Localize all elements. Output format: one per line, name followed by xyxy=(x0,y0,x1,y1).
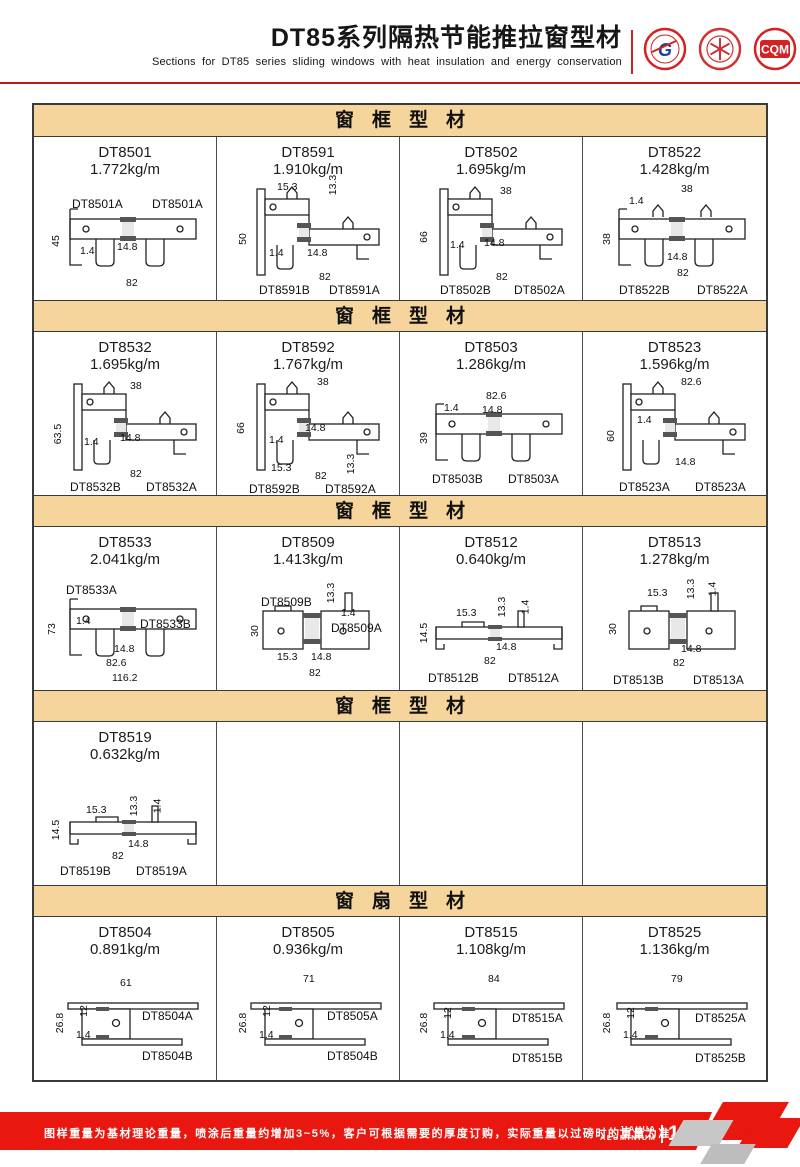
dimension-label: 116.2 xyxy=(112,672,138,684)
dimension-label: 13.3 xyxy=(496,597,508,617)
dimension-label: 61 xyxy=(120,977,132,989)
dimension-label: 82 xyxy=(315,470,327,482)
dimension-label: 15.3 xyxy=(456,607,476,619)
section-header: 窗扇型材 xyxy=(34,885,766,917)
dimension-label: 73 xyxy=(46,623,58,635)
dimension-label: 12 xyxy=(261,1005,273,1017)
part-label: DT8525A xyxy=(695,1011,746,1025)
profile-cell: DT85040.891kg/m611226.81.4DT8504ADT8504B xyxy=(34,917,217,1080)
decor-parallelogram-gray xyxy=(700,1144,756,1164)
part-label: DT8591A xyxy=(329,283,380,297)
dimension-label: 14.8 xyxy=(128,838,148,850)
dimension-label: 1.4 xyxy=(76,615,91,627)
part-label: DT8532A xyxy=(146,480,197,494)
dimension-label: 82 xyxy=(126,277,138,289)
dimension-label: 82.6 xyxy=(106,657,126,669)
gb-certification-icon: G xyxy=(642,26,688,72)
profile-drawing xyxy=(583,332,766,495)
dimension-label: 1.4 xyxy=(519,600,531,615)
part-label: DT8525B xyxy=(695,1051,746,1065)
profile-row: DT85190.632kg/m15.313.31.414.514.882DT85… xyxy=(34,722,766,885)
dimension-label: 15.3 xyxy=(277,181,297,193)
dimension-label: 1.4 xyxy=(629,195,644,207)
profile-drawing xyxy=(217,137,400,300)
dimension-label: 38 xyxy=(317,376,329,388)
dimension-label: 38 xyxy=(601,233,613,245)
part-label: DT8592A xyxy=(325,482,376,495)
profile-drawing xyxy=(217,332,400,495)
dimension-label: 13.3 xyxy=(345,454,357,474)
dimension-label: 1.4 xyxy=(450,239,465,251)
page-footer: 图样重量为基材理论重量，喷涂后重量约增加3~5%，客户可根据需要的厚度订购，实际… xyxy=(0,1104,800,1167)
profile-cell: DT85021.695kg/m38661.414.882DT8502BDT850… xyxy=(400,137,583,300)
part-label: DT8523A xyxy=(695,480,746,494)
dimension-label: 13.3 xyxy=(327,175,339,195)
dimension-label: 15.3 xyxy=(277,651,297,663)
brand-divider xyxy=(661,1125,663,1143)
dimension-label: 1.4 xyxy=(76,1029,91,1041)
dimension-label: 38 xyxy=(681,183,693,195)
profile-cell: DT85151.108kg/m841226.81.4DT8515ADT8515B xyxy=(400,917,583,1080)
dimension-label: 79 xyxy=(671,973,683,985)
certification-logos: G CQM xyxy=(642,26,798,72)
dimension-label: 82.6 xyxy=(486,390,506,402)
dimension-label: 1.4 xyxy=(706,582,718,597)
part-label: DT8501A xyxy=(72,197,123,211)
dimension-label: 38 xyxy=(500,185,512,197)
part-label: DT8504B xyxy=(142,1049,193,1063)
dimension-label: 12 xyxy=(78,1005,90,1017)
dimension-label: 13.3 xyxy=(325,583,337,603)
part-label: DT8519A xyxy=(136,864,187,878)
dimension-label: 14.8 xyxy=(675,456,695,468)
dimension-label: 82 xyxy=(319,271,331,283)
part-label: DT8513B xyxy=(613,673,664,687)
profile-drawing xyxy=(34,137,217,300)
dimension-label: 14.8 xyxy=(667,251,687,263)
profile-drawing xyxy=(400,137,583,300)
profile-cell: DT85120.640kg/m15.313.31.414.514.882DT85… xyxy=(400,527,583,690)
dimension-label: 15.3 xyxy=(647,587,667,599)
dimension-label: 82 xyxy=(309,667,321,679)
dimension-label: 66 xyxy=(235,422,247,434)
part-label: DT8509A xyxy=(331,621,382,635)
part-label: DT8504A xyxy=(142,1009,193,1023)
profile-drawing xyxy=(583,137,766,300)
dimension-label: 14.8 xyxy=(681,643,701,655)
dimension-label: 50 xyxy=(237,233,249,245)
profile-row: DT85040.891kg/m611226.81.4DT8504ADT8504B… xyxy=(34,917,766,1080)
part-label: DT8515B xyxy=(512,1051,563,1065)
empty-cell xyxy=(583,722,766,885)
dimension-label: 82 xyxy=(677,267,689,279)
dimension-label: 71 xyxy=(303,973,315,985)
dimension-label: 14.8 xyxy=(305,422,325,434)
profile-cell: DT85332.041kg/m731.414.882.6116.2DT8533A… xyxy=(34,527,217,690)
cqm-text: CQM xyxy=(761,43,789,57)
dimension-label: 1.4 xyxy=(84,436,99,448)
dimension-label: 14.8 xyxy=(482,404,502,416)
dimension-label: 14.5 xyxy=(418,623,430,643)
dimension-label: 14.8 xyxy=(307,247,327,259)
part-label: DT8513A xyxy=(693,673,744,687)
part-label: DT8504B xyxy=(327,1049,378,1063)
footer-note-band: 图样重量为基材理论重量，喷涂后重量约增加3~5%，客户可根据需要的厚度订购，实际… xyxy=(0,1112,712,1150)
part-label: DT8505A xyxy=(327,1009,378,1023)
dimension-label: 12 xyxy=(442,1007,454,1019)
header-rule xyxy=(0,82,800,84)
profile-cell: DT85050.936kg/m711226.81.4DT8505ADT8504B xyxy=(217,917,400,1080)
dimension-label: 14.5 xyxy=(50,820,62,840)
dimension-label: 1.4 xyxy=(269,434,284,446)
dimension-label: 1.4 xyxy=(259,1029,274,1041)
dimension-label: 26.8 xyxy=(54,1013,66,1033)
profile-cell: DT85131.278kg/m15.313.31.43014.882DT8513… xyxy=(583,527,766,690)
dimension-label: 45 xyxy=(50,235,62,247)
page-subtitle: Sections for DT85 series sliding windows… xyxy=(0,56,622,68)
header-divider xyxy=(631,30,633,74)
profile-cell: DT85091.413kg/m13.3301.415.314.882DT8509… xyxy=(217,527,400,690)
part-label: DT8503B xyxy=(432,472,483,486)
dimension-label: 14.8 xyxy=(117,241,137,253)
empty-cell xyxy=(217,722,400,885)
part-label: DT8519B xyxy=(60,864,111,878)
dimension-label: 15.3 xyxy=(271,462,291,474)
profile-cell: DT85251.136kg/m791226.81.4DT8525ADT8525B xyxy=(583,917,766,1080)
section-header: 窗框型材 xyxy=(34,495,766,527)
part-label: DT8591B xyxy=(259,283,310,297)
quality-seal-icon xyxy=(697,26,743,72)
dimension-label: 30 xyxy=(249,625,261,637)
dimension-label: 84 xyxy=(488,973,500,985)
part-label: DT8592B xyxy=(249,482,300,495)
dimension-label: 14.8 xyxy=(311,651,331,663)
brand-name-2: ALUMINIUM xyxy=(600,1134,656,1143)
part-label: DT8503A xyxy=(508,472,559,486)
part-label: DT8512A xyxy=(508,671,559,685)
profile-cell: DT85911.910kg/m15.313.3501.414.882DT8591… xyxy=(217,137,400,300)
profile-drawing xyxy=(34,332,217,495)
part-label: DT8509B xyxy=(261,595,312,609)
profile-row: DT85011.772kg/m451.414.882DT8501ADT8501A… xyxy=(34,137,766,300)
dimension-label: 14.8 xyxy=(496,641,516,653)
part-label: DT8523A xyxy=(619,480,670,494)
dimension-label: 38 xyxy=(130,380,142,392)
profile-cell: DT85190.632kg/m15.313.31.414.514.882DT85… xyxy=(34,722,217,885)
dimension-label: 26.8 xyxy=(237,1013,249,1033)
dimension-label: 1.4 xyxy=(623,1029,638,1041)
part-label: DT8522A xyxy=(697,283,748,297)
profile-cell: DT85231.596kg/m82.61.46014.8DT8523ADT852… xyxy=(583,332,766,495)
profile-cell: DT85031.286kg/m82.61.414.839DT8503BDT850… xyxy=(400,332,583,495)
dimension-label: 13.3 xyxy=(128,796,140,816)
section-header: 窗框型材 xyxy=(34,105,766,137)
profile-cell: DT85221.428kg/m381.43814.882DT8522BDT852… xyxy=(583,137,766,300)
dimension-label: 1.4 xyxy=(151,799,163,814)
profile-drawing xyxy=(34,722,217,885)
part-label: DT8501A xyxy=(152,197,203,211)
dimension-label: 1.4 xyxy=(440,1029,455,1041)
profile-cell: DT85011.772kg/m451.414.882DT8501ADT8501A xyxy=(34,137,217,300)
dimension-label: 1.4 xyxy=(80,245,95,257)
part-label: DT8512B xyxy=(428,671,479,685)
dimension-label: 26.8 xyxy=(601,1013,613,1033)
dimension-label: 14.8 xyxy=(114,643,134,655)
dimension-label: 1.4 xyxy=(269,247,284,259)
dimension-label: 82 xyxy=(112,850,124,862)
profile-row: DT85332.041kg/m731.414.882.6116.2DT8533A… xyxy=(34,527,766,690)
dimension-label: 60 xyxy=(605,430,617,442)
dimension-label: 12 xyxy=(625,1007,637,1019)
dimension-label: 82 xyxy=(673,657,685,669)
page-title: DT85系列隔热节能推拉窗型材 xyxy=(0,24,622,53)
dimension-label: 1.4 xyxy=(444,402,459,414)
profile-cell: DT85321.695kg/m3863.51.414.882DT8532BDT8… xyxy=(34,332,217,495)
part-label: DT8522B xyxy=(619,283,670,297)
part-label: DT8515A xyxy=(512,1011,563,1025)
dimension-label: 15.3 xyxy=(86,804,106,816)
part-label: DT8532B xyxy=(70,480,121,494)
part-label: DT8502A xyxy=(514,283,565,297)
dimension-label: 30 xyxy=(607,623,619,635)
profile-table: 窗框型材 DT85011.772kg/m451.414.882DT8501ADT… xyxy=(32,103,768,1082)
part-label: DT8502B xyxy=(440,283,491,297)
dimension-label: 82.6 xyxy=(681,376,701,388)
dimension-label: 82 xyxy=(484,655,496,667)
dimension-label: 1.4 xyxy=(637,414,652,426)
profile-cell: DT85921.767kg/m38661.414.815.38213.3DT85… xyxy=(217,332,400,495)
dimension-label: 63.5 xyxy=(52,424,64,444)
dimension-label: 14.8 xyxy=(120,432,140,444)
section-header: 窗框型材 xyxy=(34,690,766,722)
dimension-label: 82 xyxy=(130,468,142,480)
dimension-label: 66 xyxy=(418,231,430,243)
catalog-page: DT85系列隔热节能推拉窗型材 Sections for DT85 series… xyxy=(0,0,800,1167)
dimension-label: 13.3 xyxy=(685,579,697,599)
footer-note: 图样重量为基材理论重量，喷涂后重量约增加3~5%，客户可根据需要的厚度订购，实际… xyxy=(44,1125,684,1141)
part-label: DT8533A xyxy=(66,583,117,597)
dimension-label: 1.4 xyxy=(341,607,356,619)
part-label: DT8533B xyxy=(140,617,191,631)
section-header: 窗框型材 xyxy=(34,300,766,332)
profile-row: DT85321.695kg/m3863.51.414.882DT8532BDT8… xyxy=(34,332,766,495)
dimension-label: 82 xyxy=(496,271,508,283)
dimension-label: 14.8 xyxy=(484,237,504,249)
page-header: DT85系列隔热节能推拉窗型材 Sections for DT85 series… xyxy=(0,24,622,68)
empty-cell xyxy=(400,722,583,885)
dimension-label: 26.8 xyxy=(418,1013,430,1033)
dimension-label: 39 xyxy=(418,432,430,444)
cqm-certification-icon: CQM xyxy=(752,26,798,72)
